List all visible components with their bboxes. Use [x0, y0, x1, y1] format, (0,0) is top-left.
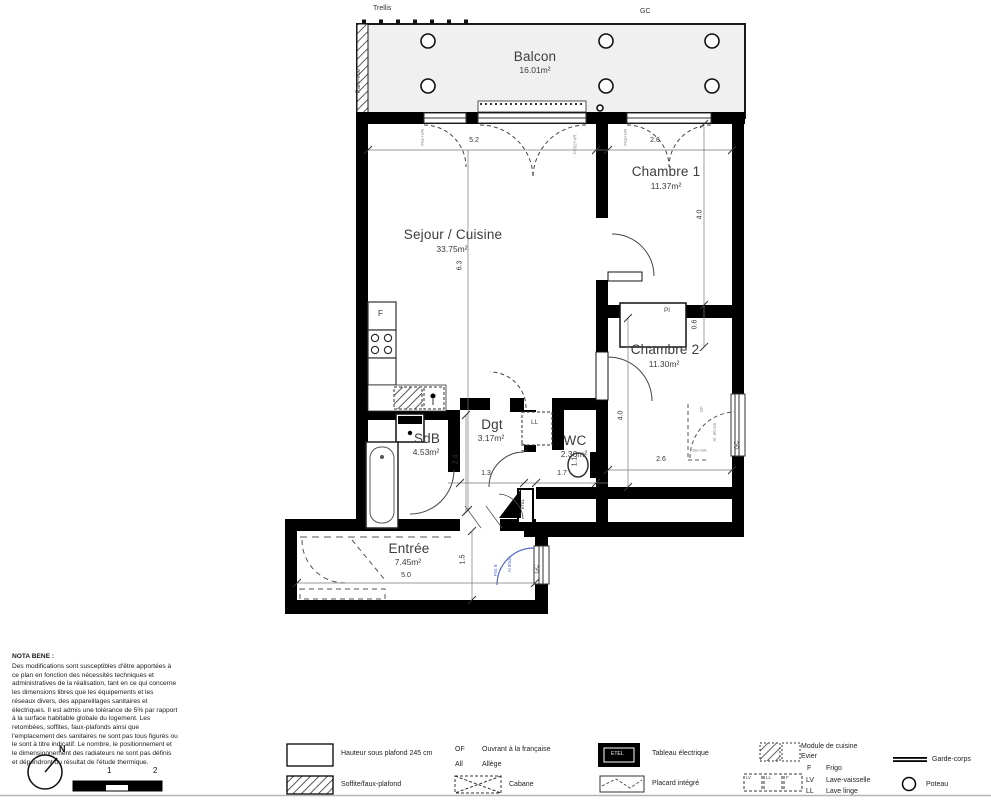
legend-ll: Lave linge: [826, 788, 858, 795]
legend-tableau: Tableau électrique: [652, 750, 709, 757]
room-label-sdb: SdB: [414, 432, 440, 446]
nota-bene-line: électriques. Il est admis une tolérance …: [12, 707, 177, 716]
dim-ch2-h: 4.0: [617, 411, 624, 421]
legend-ll-abbr: LL: [806, 788, 814, 795]
legend-hauteur: Hauteur sous plafond 245 cm: [341, 750, 432, 757]
cabane-swatch: [455, 776, 501, 793]
dim-ch2-w: 2.6: [656, 456, 666, 463]
floor-plan-page: Trellis GC Pare-vue Balcon 16.01m² Sejou…: [0, 0, 991, 800]
door-sill: [478, 101, 586, 112]
nota-bene-line: le sont à titre indicatif. Le nombre, le…: [12, 741, 172, 750]
nota-bene-title: NOTA BENE :: [12, 653, 54, 662]
garde-corps-swatch: [893, 757, 927, 762]
allege-entree-label: Al 60cm: [508, 556, 513, 572]
window-code-f03: F03+VR: [624, 129, 629, 146]
washing-machine-box: [522, 412, 552, 445]
nota-bene-line: Des modifications sont susceptibles d'êt…: [12, 663, 171, 672]
nota-bene-line: réseaux divers, des appareillages sanita…: [12, 698, 148, 707]
cooktop-icon: [368, 330, 396, 358]
legend-f-abbr: F: [807, 765, 811, 772]
legend-etel-text: ETEL: [611, 752, 624, 757]
lave-linge-label: LL: [531, 420, 538, 427]
nota-bene-line: les dimensions libres que les équipement…: [12, 689, 153, 698]
etel-plan-label: ETEL: [521, 499, 525, 509]
gc-top-label: GC: [640, 8, 651, 15]
of-plan-label: OF: [700, 406, 705, 412]
room-area-chambre1: 11.37m²: [651, 182, 682, 191]
legend-garde-corps: Garde-corps: [932, 756, 971, 763]
dim-entree-w: 5.0: [401, 572, 411, 579]
legend-lv: Lave-vaisselle: [826, 777, 870, 784]
legend-frigo: Frigo: [826, 765, 842, 772]
nota-bene-line: retombées, soffites, faux-plafonds ainsi…: [12, 724, 139, 733]
room-label-sejour: Sejour / Cuisine: [404, 228, 503, 242]
window-code-f01: F01+VR: [421, 129, 426, 146]
legend-of-abbr: OF: [455, 746, 465, 753]
dim-sdb-h: 2.4: [452, 455, 459, 465]
nota-bene-line: l'emplacement des sanitaires ne sont pas…: [12, 733, 178, 742]
balcony: [357, 22, 745, 118]
dim-entree-h: 1.5: [459, 555, 466, 565]
dim-dgt-h: 1.7: [521, 443, 528, 453]
placard-niche: [620, 303, 686, 347]
legend-placard: Placard intégré: [652, 780, 699, 787]
dishwasher-icon: [394, 387, 422, 409]
north-label: N: [59, 745, 66, 754]
poteau-swatch: [903, 778, 916, 791]
room-label-balcon: Balcon: [514, 50, 556, 64]
dim-dgt-w: 1.3: [481, 470, 491, 477]
nota-bene-line: et dépendront du résultat de l'étude the…: [12, 759, 149, 768]
legend-poteau: Poteau: [926, 781, 948, 788]
window-code-f04: F04 B: [494, 564, 499, 576]
window-code-pf02: PF02+VR: [574, 134, 579, 154]
nota-bene-line: à la surface habitable globale du logeme…: [12, 715, 150, 724]
kitchen-module-swatch: [760, 743, 800, 761]
room-label-chambre2: Chambre 2: [631, 343, 700, 357]
placard-label: Pl: [664, 308, 670, 315]
legend-soffite: Soffite/faux-plafond: [341, 781, 401, 788]
dim-sejour-h: 6.3: [456, 261, 463, 271]
dim-sejour-w: 5.2: [469, 137, 479, 144]
nota-bene-line: administratives de la réalisation, tant …: [12, 680, 176, 689]
legend-cabane: Cabane: [509, 781, 534, 788]
nota-bene-line: ce plan en fonction des nécessités techn…: [12, 672, 154, 681]
room-label-chambre1: Chambre 1: [632, 165, 701, 179]
dim-placard-d: 0.6: [691, 320, 698, 330]
fridge-label: F: [378, 310, 383, 318]
room-area-dgt: 3.17m²: [478, 434, 504, 443]
legend-all-abbr: All: [455, 761, 463, 768]
room-area-entree: 7.45m²: [395, 558, 421, 567]
legend-box-ll: LL: [766, 776, 771, 781]
gc-right-label: GC: [735, 441, 741, 450]
dim-wc-d: 1.1: [571, 457, 578, 467]
sink-icon: [424, 387, 444, 409]
dim-ch1-h: 4.0: [696, 210, 703, 220]
allege-ch2-label: Al. 60 cm: [713, 423, 718, 442]
dim-ch1-w: 2.6: [650, 137, 660, 144]
nota-bene-line: le dimensionnement des radiateurs ne son…: [12, 750, 171, 759]
soffit-swatch: [287, 776, 333, 794]
legend-allege: Allège: [482, 761, 501, 768]
entree-window-swing: [497, 548, 534, 585]
trellis-label: Trellis: [373, 5, 391, 12]
gc-entree-label: GC: [535, 565, 541, 574]
scale-2-label: 2: [153, 767, 157, 775]
legend-box-f: F: [786, 776, 789, 781]
pare-vue-label: Pare-vue: [356, 69, 362, 93]
room-area-sdb: 4.53m²: [413, 448, 439, 457]
bathtub-icon: [366, 442, 398, 528]
legend-box-lv: LV: [746, 776, 751, 781]
room-label-entree: Entrée: [389, 542, 430, 556]
room-area-chambre2: 11.30m²: [649, 360, 680, 369]
room-area-sejour: 33.75m²: [436, 245, 467, 254]
window-code-f06: F06+VR: [690, 449, 707, 454]
placard-swatch: [600, 776, 644, 792]
room-area-balcon: 16.01m²: [519, 66, 550, 75]
room-label-wc: WC: [564, 434, 587, 448]
dim-wc-w: 1.7: [557, 470, 567, 477]
legend-module: Module de cuisine: [801, 743, 857, 750]
scale-1-label: 1: [107, 767, 111, 775]
room-label-dgt: Dgt: [481, 418, 503, 432]
scale-bar: [73, 781, 162, 791]
legend-of: Ouvrant à la française: [482, 746, 550, 753]
legend-lv-abbr: LV: [806, 777, 814, 784]
appliance-swatches: [744, 774, 802, 791]
legend-evier: Evier: [801, 753, 817, 760]
ceiling-height-swatch: [287, 744, 333, 766]
